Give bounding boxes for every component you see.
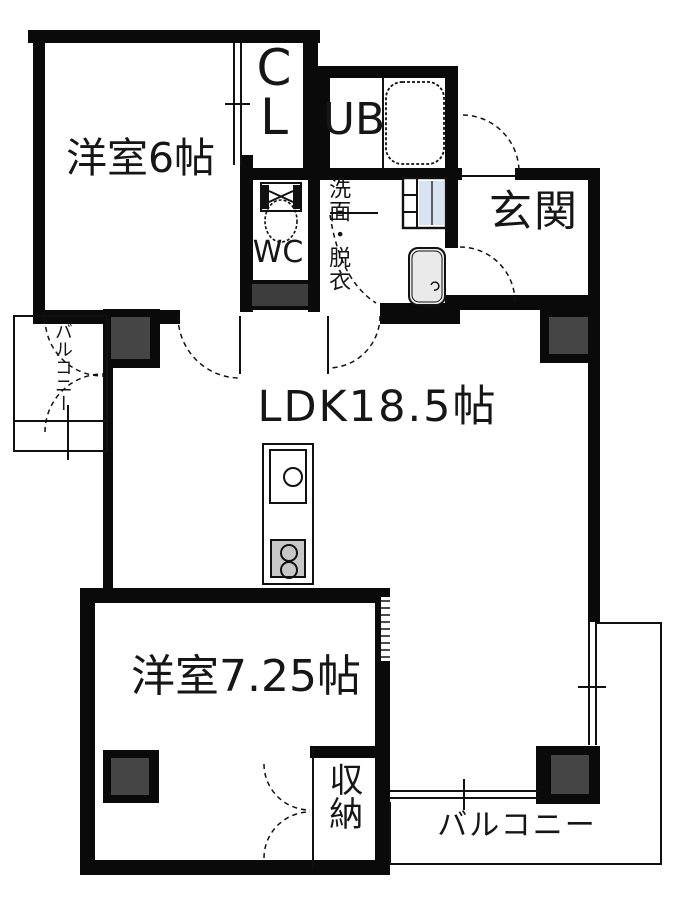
room-label-western-room-6: 洋室6帖: [48, 137, 233, 180]
room-label-washroom: 洗面・脱衣: [326, 177, 349, 329]
washing-machine-icon: [403, 178, 446, 228]
entrance-hall-door-arc: [460, 247, 515, 302]
wall-ldk-top-right: [380, 303, 460, 324]
wall-cl-east: [303, 40, 318, 170]
wall-left-upper: [33, 30, 45, 323]
label-balcony-left: バルコニー: [52, 322, 71, 460]
room-label-entrance: 玄関: [486, 190, 582, 235]
pillar-core-icon: [549, 317, 588, 354]
room-label-western-room-7-25: 洋室7.25帖: [113, 654, 379, 700]
room-label-wc: WC: [246, 237, 310, 269]
wall-entrance-top-left: [448, 168, 462, 180]
wall-entrance-top-right: [515, 168, 600, 180]
pillar-core-icon: [111, 758, 149, 795]
wall-room725-left: [80, 588, 95, 875]
label-balcony-bottom: バルコニー: [428, 810, 606, 842]
entrance-door-arc: [463, 115, 519, 171]
wall-hatch: [381, 597, 390, 661]
wall-room725-top: [80, 588, 390, 603]
duct-core-icon: [252, 284, 308, 306]
room-label-ldk: LDK18.5帖: [230, 385, 525, 430]
kitchen-counter: [263, 444, 313, 584]
room-label-closet: CL: [243, 44, 305, 142]
floor-plan: 洋室6帖 CL UB WC 洗面・脱衣 玄関 LDK18.5帖 洋室7.25帖 …: [0, 0, 694, 900]
storage-door-top-arc: [264, 764, 310, 810]
toilet-icon: [261, 183, 301, 242]
pillar-core-icon: [111, 317, 150, 359]
wall-entrance-bottom: [445, 295, 600, 310]
storage-door-bottom-arc: [264, 812, 310, 858]
room-label-unit-bath: UB: [322, 97, 386, 143]
pillars: [103, 280, 600, 804]
closet-letter-l: L: [260, 88, 288, 146]
bathtub-icon: [386, 82, 444, 164]
room-label-storage: 収納: [324, 762, 360, 857]
ldk-door-left-arc: [178, 316, 240, 378]
washbasin-icon: [409, 248, 445, 305]
kitchen-faucet-icon: [284, 468, 302, 486]
wall-ub-top: [318, 66, 458, 78]
wall-right-outer: [588, 168, 600, 622]
wall-storage-right: [375, 746, 390, 875]
wall-bottom: [80, 860, 390, 875]
pillar-core-icon: [551, 755, 589, 794]
